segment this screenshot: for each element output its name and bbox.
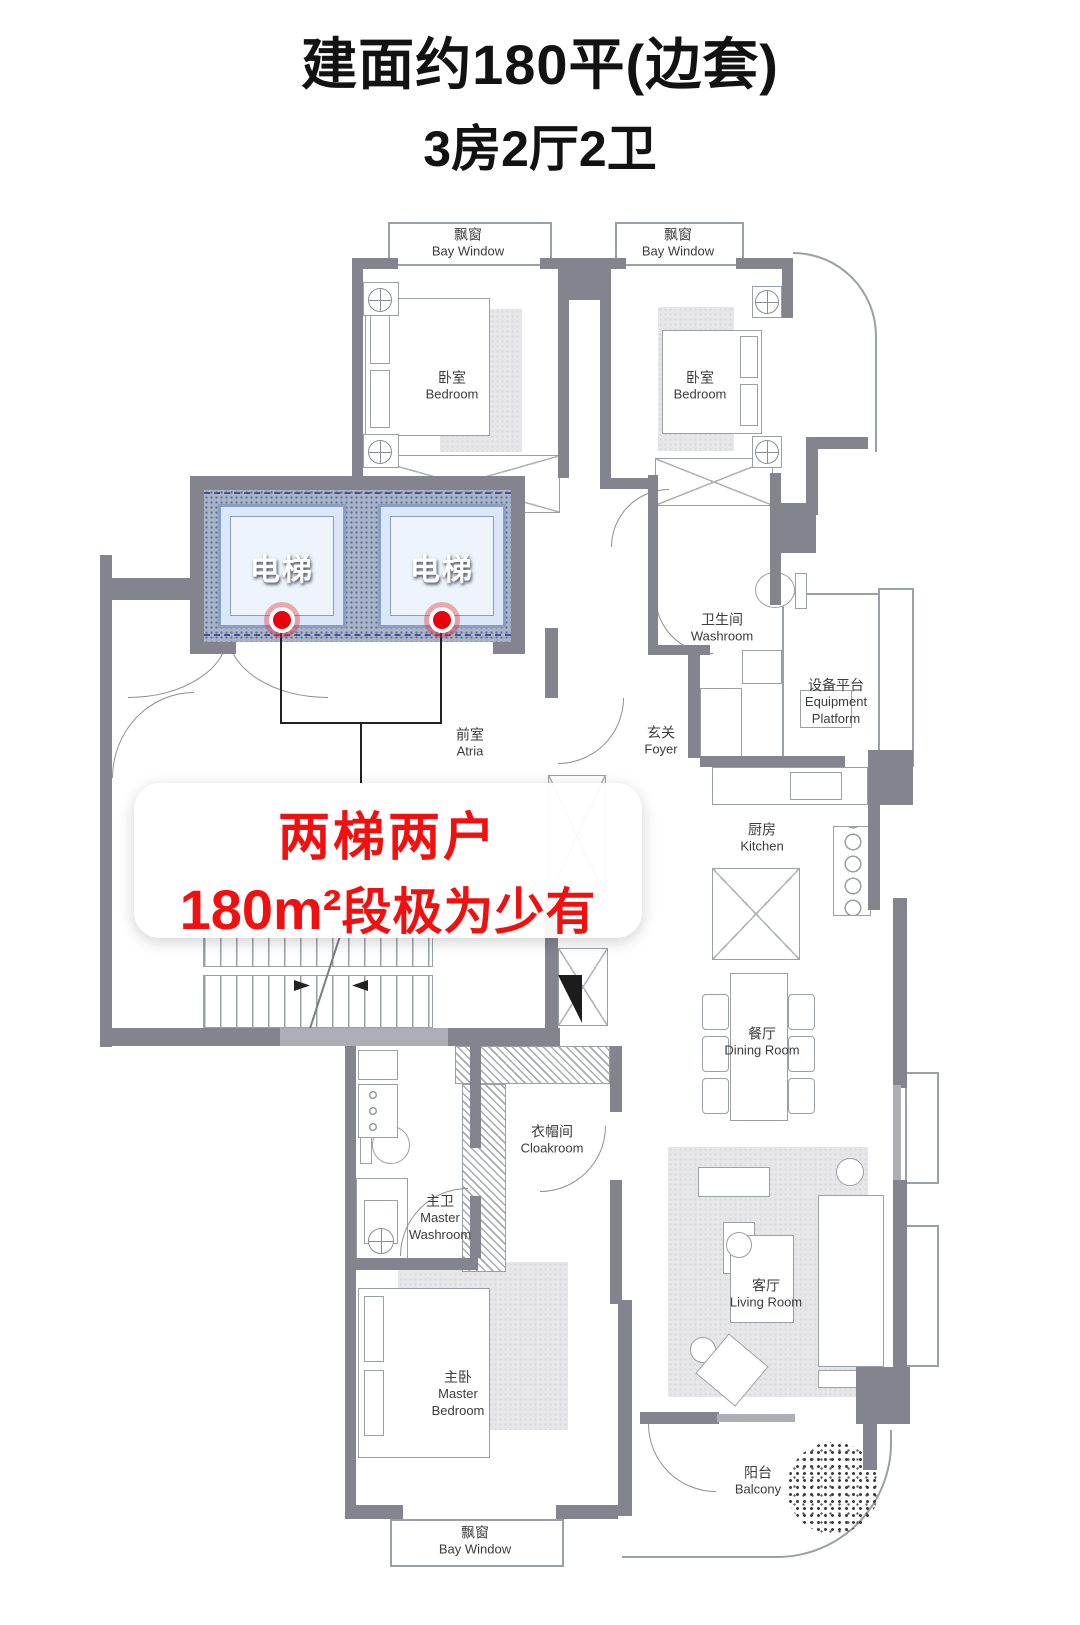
label-en: Washroom: [409, 1227, 471, 1244]
wall: [600, 258, 611, 488]
label-en: Foyer: [644, 742, 677, 759]
label-zh: 餐厅: [724, 1024, 799, 1042]
elevator-dashed-line: [204, 492, 511, 494]
room-label-bay-window-bottom: 飘窗 Bay Window: [439, 1523, 511, 1558]
door-arc: [112, 692, 194, 778]
stair-landing: [203, 966, 433, 976]
label-zh: 卧室: [674, 368, 727, 386]
wall: [100, 555, 112, 1047]
banner-line-2: 180m²段极为少有: [134, 872, 642, 944]
room-label-dining-room: 餐厅 Dining Room: [724, 1024, 799, 1059]
room-label-elevator-right: 电梯: [410, 545, 474, 589]
label-zh: 主卧: [432, 1368, 485, 1386]
label-zh: 主卫: [409, 1192, 471, 1210]
furniture: [364, 1370, 384, 1436]
ceiling-lamp-symbol: [368, 1228, 394, 1254]
callout-line: [360, 724, 362, 784]
label-en: Bedroom: [426, 387, 479, 404]
furniture: [790, 772, 842, 800]
furniture: [795, 573, 807, 609]
ceiling-lamp-symbol: [368, 440, 392, 464]
banner-line-2-rest: 段极为少有: [341, 884, 596, 940]
thin-outline: [878, 588, 914, 767]
wall: [770, 473, 781, 605]
wall: [348, 1258, 478, 1270]
label-zh: 设备平台: [805, 676, 867, 694]
wall: [893, 898, 907, 1088]
wall: [493, 640, 525, 654]
wall: [893, 1180, 907, 1372]
washer-cabinet: [358, 1084, 398, 1138]
wall: [610, 1180, 622, 1304]
title-line-2: 3房2厅2卫: [0, 109, 1080, 181]
label-zh: 厨房: [740, 820, 783, 838]
furniture: [370, 370, 390, 428]
wall: [868, 750, 913, 805]
furniture-circle: [726, 1232, 752, 1258]
room-label-bedroom-left: 卧室 Bedroom: [426, 368, 479, 403]
wall: [190, 640, 236, 654]
dining-chair: [702, 1078, 729, 1114]
wall: [700, 756, 845, 767]
furniture: [364, 1296, 384, 1362]
room-label-balcony: 阳台 Balcony: [735, 1463, 781, 1498]
wall: [868, 805, 880, 910]
label-en: Bay Window: [642, 244, 714, 261]
label-en: Balcony: [735, 1482, 781, 1499]
label-zh: 飘窗: [642, 225, 714, 243]
elevator-location-dot: [433, 611, 451, 629]
wall: [190, 476, 525, 490]
room-label-atria: 前室 Atria: [456, 725, 484, 760]
furniture: [818, 1195, 884, 1367]
label-en: Bedroom: [432, 1403, 485, 1420]
door-arc: [558, 698, 624, 764]
ceiling-lamp-symbol: [368, 288, 392, 312]
label-zh: 飘窗: [439, 1523, 511, 1541]
furniture: [740, 336, 758, 378]
label-en: Cloakroom: [521, 1141, 584, 1158]
wall: [648, 645, 710, 655]
wall: [352, 258, 363, 484]
furniture: [698, 1167, 770, 1197]
furniture-circle: [836, 1158, 864, 1186]
curved-wall: [793, 252, 877, 452]
wall: [558, 300, 569, 478]
label-en: Bay Window: [439, 1542, 511, 1559]
label-en: Living Room: [730, 1295, 802, 1312]
page-title: 建面约180平(边套) 3房2厅2卫: [0, 20, 1080, 181]
wall: [100, 1028, 280, 1046]
wall: [545, 628, 558, 698]
wall: [600, 478, 650, 489]
wall: [470, 1046, 481, 1148]
wall: [558, 258, 606, 300]
room-label-living-room: 客厅 Living Room: [730, 1276, 802, 1311]
thin-outline: [905, 1225, 939, 1367]
room-label-master-washroom: 主卫 Master Washroom: [409, 1192, 471, 1244]
furniture: [818, 1370, 860, 1388]
label-en: Bay Window: [432, 244, 504, 261]
room-label-master-bedroom: 主卧 Master Bedroom: [432, 1368, 485, 1420]
wall: [600, 258, 626, 269]
promo-banner: 两梯两户 180m²段极为少有: [134, 783, 642, 938]
door-arc: [228, 634, 328, 698]
room-label-kitchen: 厨房 Kitchen: [740, 820, 783, 855]
closet-box: [712, 868, 800, 960]
banner-line-1: 两梯两户: [134, 795, 642, 870]
furniture: [742, 650, 782, 684]
label-en: Bedroom: [674, 387, 727, 404]
label-en: Platform: [805, 711, 867, 728]
room-label-cloakroom: 衣帽间 Cloakroom: [521, 1122, 584, 1157]
wall: [345, 1046, 356, 1518]
label-en: Equipment: [805, 694, 867, 711]
wall: [190, 476, 204, 654]
floor-plan-page: 建面约180平(边套) 3房2厅2卫 飘窗 Bay Window 飘窗 Bay …: [0, 0, 1080, 1625]
wall: [856, 1367, 910, 1424]
label-zh: 玄关: [644, 723, 677, 741]
thin-outline: [905, 1072, 939, 1184]
wall: [352, 258, 398, 269]
wall: [448, 1028, 560, 1046]
wall: [610, 1046, 622, 1112]
label-zh: 卫生间: [691, 610, 753, 628]
room-label-bedroom-right: 卧室 Bedroom: [674, 368, 727, 403]
wall: [470, 1196, 481, 1258]
label-zh: 阳台: [735, 1463, 781, 1481]
wall: [782, 258, 793, 318]
wall: [640, 1412, 719, 1424]
room-label-elevator-left: 电梯: [250, 545, 314, 589]
furniture: [740, 384, 758, 426]
label-zh: 衣帽间: [521, 1122, 584, 1140]
wall: [511, 476, 525, 654]
label-en: Master: [409, 1210, 471, 1227]
room-label-equipment-platform: 设备平台 Equipment Platform: [805, 676, 867, 728]
furniture: [700, 688, 742, 760]
ceiling-lamp-symbol: [755, 440, 779, 464]
banner-area-number: 180m²: [180, 878, 342, 941]
furniture: [358, 1050, 398, 1080]
wall: [778, 503, 816, 553]
room-label-washroom: 卫生间 Washroom: [691, 610, 753, 645]
label-en: Kitchen: [740, 839, 783, 856]
room-label-bay-window-top-left: 飘窗 Bay Window: [432, 225, 504, 260]
label-en: Master: [432, 1386, 485, 1403]
door-arc: [611, 489, 669, 547]
wall: [618, 1300, 632, 1516]
label-en: Dining Room: [724, 1043, 799, 1060]
stove: [833, 826, 871, 916]
callout-line: [280, 629, 282, 723]
wall-light: [280, 1028, 448, 1046]
elevator-dashed-line: [204, 634, 511, 636]
ceiling-lamp-symbol: [755, 290, 779, 314]
wall-light: [893, 1085, 901, 1180]
dining-chair: [788, 1078, 815, 1114]
label-en: Washroom: [691, 629, 753, 646]
room-label-bay-window-top-right: 飘窗 Bay Window: [642, 225, 714, 260]
wall-light: [717, 1414, 795, 1422]
title-line-1: 建面约180平(边套): [0, 20, 1080, 101]
wall: [345, 1505, 403, 1519]
wall: [863, 1424, 877, 1470]
room-label-foyer: 玄关 Foyer: [644, 723, 677, 758]
wall: [556, 1505, 618, 1519]
callout-line: [440, 629, 442, 723]
label-zh: 前室: [456, 725, 484, 743]
label-zh: 客厅: [730, 1276, 802, 1294]
elevator-location-dot: [273, 611, 291, 629]
wall: [648, 475, 658, 655]
wall: [688, 655, 700, 758]
wall: [100, 578, 192, 600]
label-zh: 卧室: [426, 368, 479, 386]
label-zh: 飘窗: [432, 225, 504, 243]
label-en: Atria: [456, 744, 484, 761]
